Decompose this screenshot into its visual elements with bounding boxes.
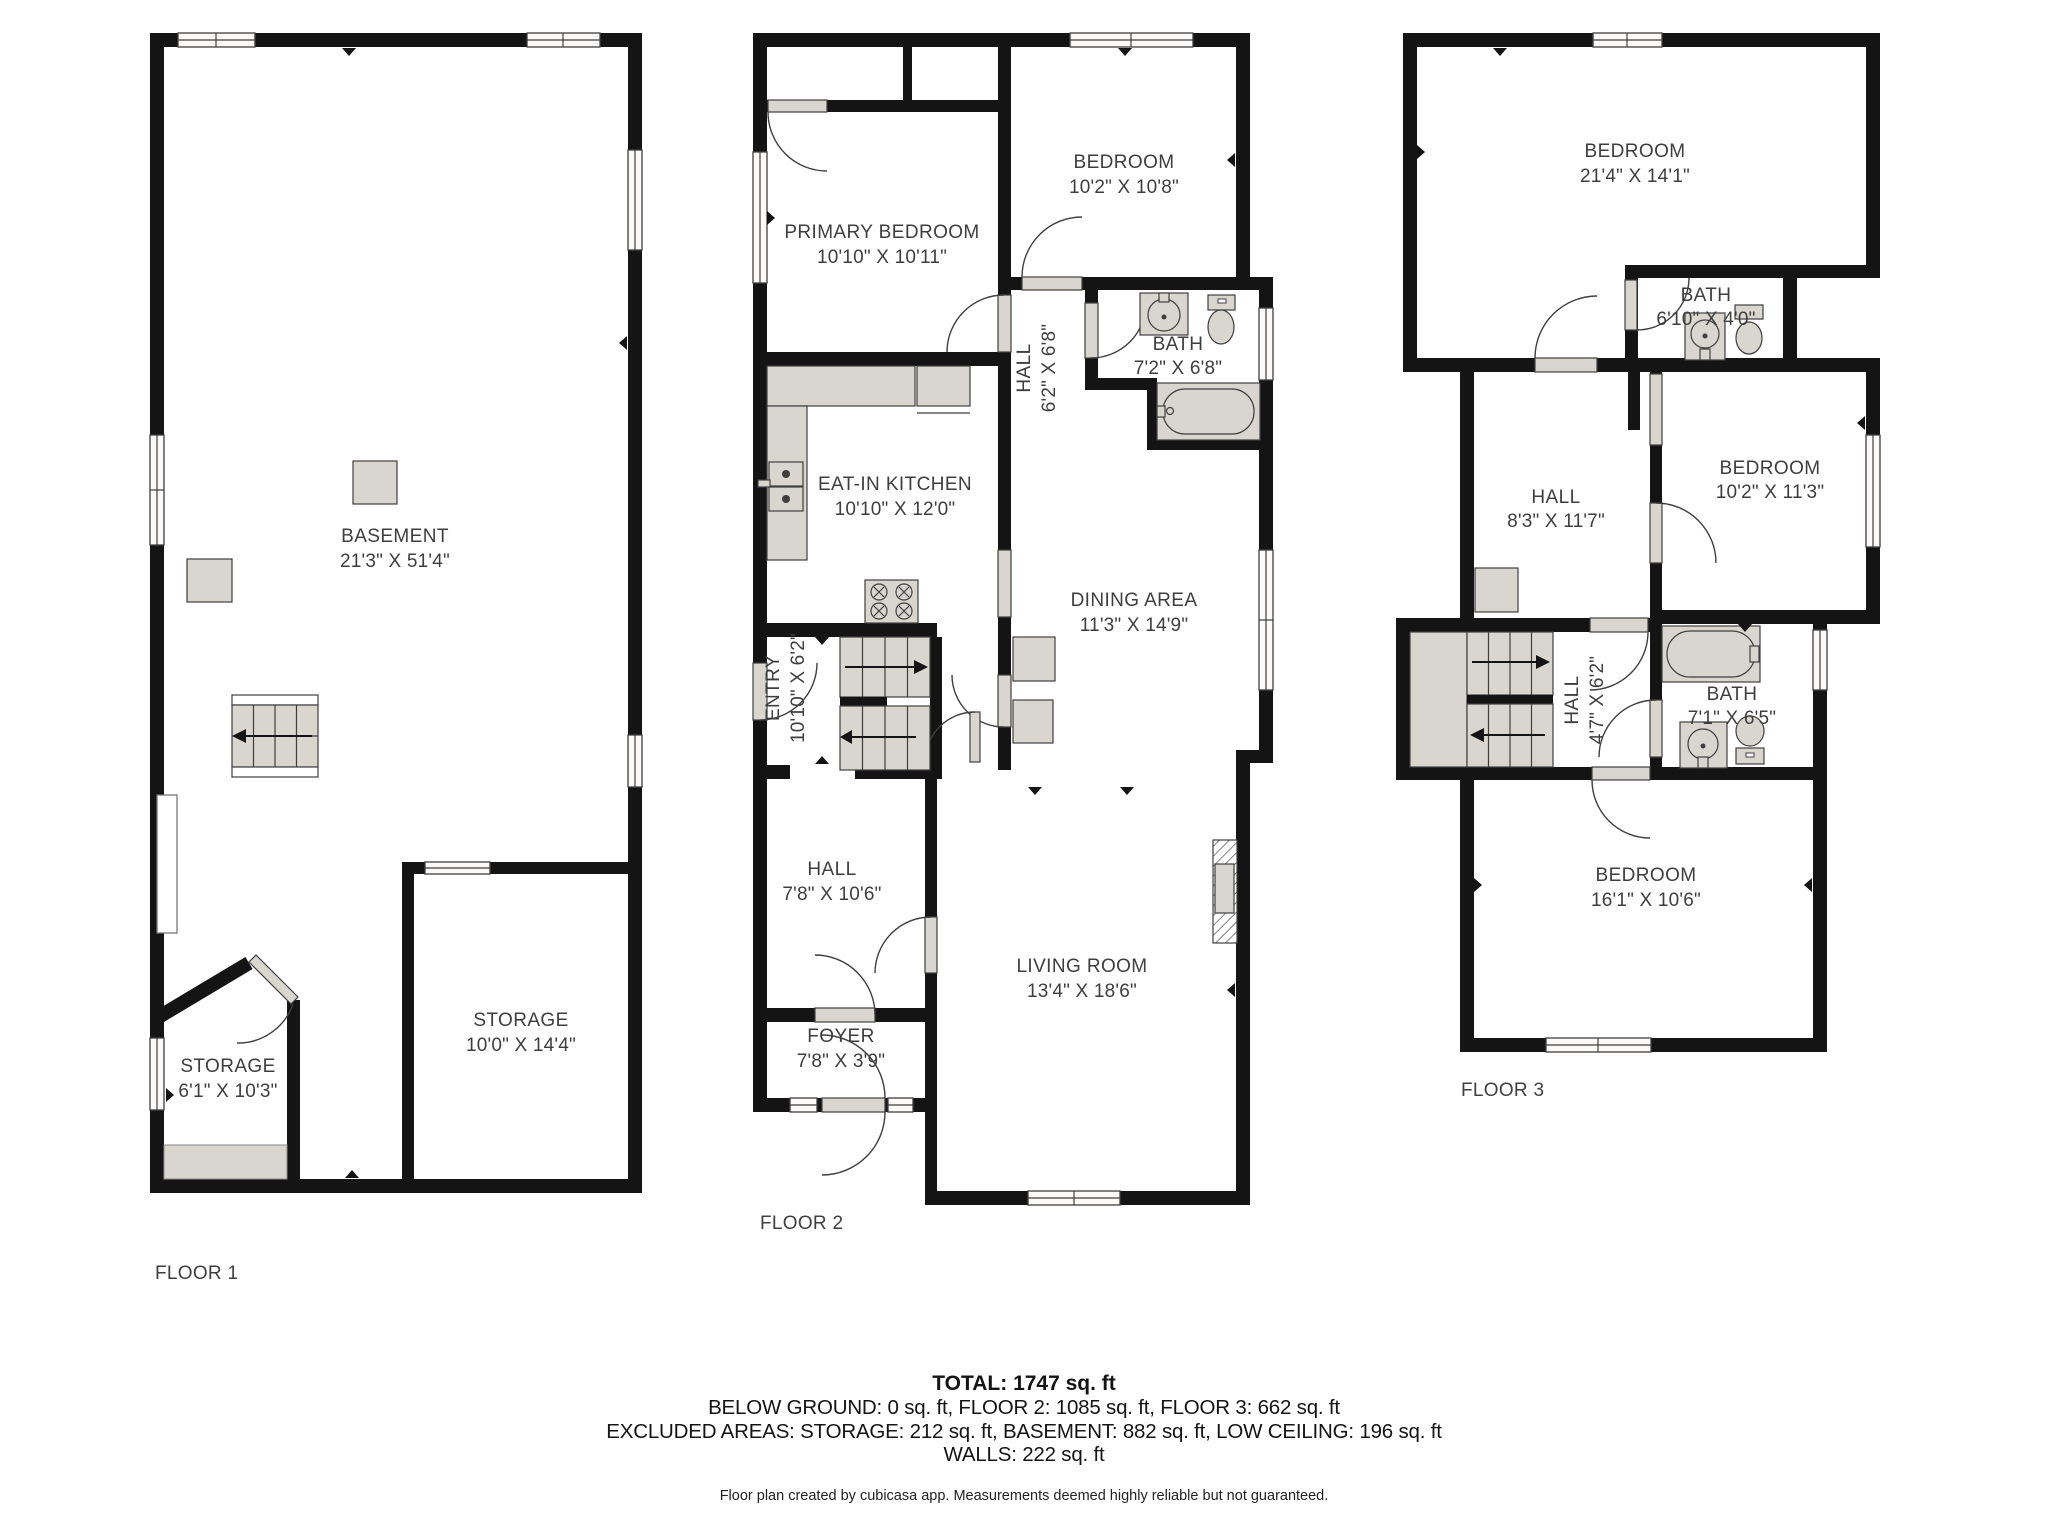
door bbox=[947, 295, 1011, 352]
window bbox=[527, 33, 600, 47]
room-dims-hall-small: 4'7" X 6'2" bbox=[1587, 656, 1608, 744]
room-label-kitchen: EAT-IN KITCHEN bbox=[818, 474, 972, 495]
room-label-storage-small: STORAGE bbox=[180, 1056, 275, 1077]
room-label-primary-bedroom: PRIMARY BEDROOM bbox=[784, 222, 979, 243]
fireplace bbox=[1213, 840, 1237, 943]
door bbox=[1599, 700, 1662, 757]
window bbox=[178, 33, 255, 47]
floor-2-label: FLOOR 2 bbox=[760, 1213, 843, 1234]
low-ceiling-area bbox=[164, 1145, 287, 1179]
room-label-bath-mid: BATH bbox=[1707, 684, 1758, 705]
door bbox=[1592, 767, 1650, 838]
room-dims-primary-bedroom: 10'10" X 10'11" bbox=[817, 247, 947, 268]
room-label-entry: ENTRY bbox=[763, 655, 784, 721]
stairs bbox=[1410, 632, 1553, 767]
direction-arrows bbox=[166, 48, 627, 1178]
bathroom-sink bbox=[1140, 293, 1188, 335]
window bbox=[753, 152, 767, 283]
window bbox=[425, 862, 490, 874]
window bbox=[1259, 308, 1273, 380]
bathtub bbox=[1662, 626, 1760, 682]
room-dims-kitchen: 10'10" X 12'0" bbox=[835, 499, 956, 520]
room-dims-storage-large: 10'0" X 14'4" bbox=[466, 1035, 576, 1056]
room-label-bedroom-top: BEDROOM bbox=[1585, 141, 1686, 162]
toilet bbox=[1208, 295, 1235, 344]
dining-furniture bbox=[1013, 637, 1055, 743]
room-label-hall-upper-f2: HALL bbox=[1014, 343, 1035, 392]
room-dims-living: 13'4" X 18'6" bbox=[1027, 981, 1137, 1002]
cased-opening bbox=[998, 550, 1011, 617]
window bbox=[1866, 435, 1880, 547]
door bbox=[815, 955, 875, 1022]
window bbox=[1070, 33, 1193, 47]
stairs bbox=[840, 637, 930, 770]
room-label-storage-large: STORAGE bbox=[473, 1010, 568, 1031]
closet-sliding-door bbox=[768, 100, 827, 171]
floor-plan-canvas: BASEMENT 21'3" X 51'4" STORAGE 6'1" X 10… bbox=[0, 0, 2048, 1536]
floor-3-plan: BEDROOM 21'4" X 14'1" BATH 6'10" X 4'0" … bbox=[1396, 33, 1880, 1101]
room-label-dining: DINING AREA bbox=[1071, 590, 1198, 611]
door bbox=[1650, 503, 1716, 563]
window bbox=[790, 1098, 817, 1112]
window bbox=[150, 435, 164, 545]
room-label-bedroom-mid: BEDROOM bbox=[1720, 458, 1821, 479]
room-label-bedroom-f2: BEDROOM bbox=[1074, 152, 1175, 173]
summary-excluded: EXCLUDED AREAS: STORAGE: 212 sq. ft, BAS… bbox=[606, 1420, 1442, 1443]
room-dims-dining: 11'3" X 14'9" bbox=[1080, 615, 1189, 636]
room-dims-bedroom-mid: 10'2" X 11'3" bbox=[1716, 482, 1825, 503]
summary-block: TOTAL: 1747 sq. ft BELOW GROUND: 0 sq. f… bbox=[606, 1372, 1442, 1504]
bathtub bbox=[1157, 383, 1260, 440]
window bbox=[888, 1098, 913, 1112]
door bbox=[1535, 296, 1597, 372]
window bbox=[1028, 1191, 1120, 1205]
room-dims-storage-small: 6'1" X 10'3" bbox=[178, 1081, 277, 1102]
room-dims-foyer: 7'8" X 3'9" bbox=[797, 1051, 885, 1072]
stairs bbox=[232, 695, 318, 777]
floor-3-label: FLOOR 3 bbox=[1461, 1080, 1544, 1101]
summary-floors: BELOW GROUND: 0 sq. ft, FLOOR 2: 1085 sq… bbox=[708, 1396, 1340, 1419]
floor-2-plan: PRIMARY BEDROOM 10'10" X 10'11" BEDROOM … bbox=[753, 33, 1273, 1234]
cased-opening bbox=[1650, 374, 1662, 445]
window bbox=[628, 150, 642, 250]
floor-1-plan: BASEMENT 21'3" X 51'4" STORAGE 6'1" X 10… bbox=[150, 33, 642, 1284]
floor-1-label: FLOOR 1 bbox=[155, 1263, 238, 1284]
room-dims-bedroom-top: 21'4" X 14'1" bbox=[1580, 166, 1690, 187]
window bbox=[1259, 550, 1273, 690]
disclaimer: Floor plan created by cubicasa app. Meas… bbox=[720, 1488, 1329, 1504]
room-label-hall-small: HALL bbox=[1562, 675, 1583, 724]
support-column bbox=[1475, 568, 1518, 612]
window bbox=[1593, 33, 1662, 47]
room-label-bedroom-lower: BEDROOM bbox=[1596, 865, 1697, 886]
room-label-basement: BASEMENT bbox=[341, 526, 449, 547]
summary-total: TOTAL: 1747 sq. ft bbox=[932, 1372, 1116, 1395]
room-dims-hall-lower-f2: 7'8" X 10'6" bbox=[782, 884, 881, 905]
window bbox=[150, 1038, 164, 1110]
door bbox=[952, 675, 1011, 727]
room-label-foyer: FOYER bbox=[807, 1026, 874, 1047]
wall-panel bbox=[157, 795, 177, 933]
room-label-living: LIVING ROOM bbox=[1016, 956, 1147, 977]
room-dims-bath-mid: 7'1" X 6'5" bbox=[1688, 708, 1776, 729]
room-label-hall-lower-f2: HALL bbox=[807, 859, 856, 880]
door bbox=[1085, 303, 1146, 358]
door bbox=[875, 917, 937, 973]
window bbox=[1546, 1038, 1651, 1052]
stove bbox=[865, 580, 918, 623]
room-dims-hall-upper-f2: 6'2" X 6'8" bbox=[1039, 324, 1060, 412]
room-label-bath-f2: BATH bbox=[1153, 334, 1204, 355]
door bbox=[1022, 217, 1082, 290]
room-dims-hall-f3: 8'3" X 11'7" bbox=[1507, 511, 1605, 532]
room-dims-bath-f2: 7'2" X 6'8" bbox=[1134, 358, 1222, 379]
room-dims-bedroom-f2: 10'2" X 10'8" bbox=[1069, 177, 1179, 198]
window bbox=[628, 735, 642, 787]
summary-walls: WALLS: 222 sq. ft bbox=[943, 1443, 1105, 1466]
room-label-hall-f3: HALL bbox=[1531, 487, 1580, 508]
room-label-bath-top: BATH bbox=[1681, 285, 1732, 306]
room-dims-entry: 10'10" X 6'2" bbox=[788, 633, 809, 743]
room-dims-bedroom-lower: 16'1" X 10'6" bbox=[1591, 890, 1701, 911]
room-dims-basement: 21'3" X 51'4" bbox=[340, 551, 450, 572]
window bbox=[1813, 630, 1827, 690]
room-dims-bath-top: 6'10" X 4'0" bbox=[1656, 309, 1755, 330]
